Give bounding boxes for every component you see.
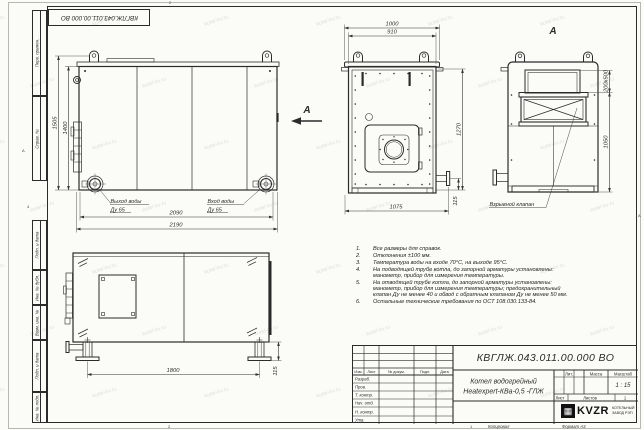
product-name-line2: Heatexpert-КВа-0,5 -ГЛЖ: [463, 389, 543, 396]
scale-header: Масштаб: [614, 371, 632, 376]
view-a-title: А: [548, 26, 556, 37]
title-block: Изм. Лист № докум. Подп. Дата Разраб. Пр…: [352, 345, 637, 423]
note-item: 1. Все размеры для справок.: [356, 246, 571, 252]
dim-1000: 1000: [386, 22, 400, 28]
dim-1505: 1505: [53, 116, 59, 130]
view-a: А 200х500 1050 Взрывной клапан: [489, 26, 613, 208]
note-number: 1.: [356, 246, 373, 252]
role-nkontr: Н. контр.: [355, 409, 374, 414]
note-item: 4. На подводящей трубе котла, до запорно…: [356, 267, 571, 279]
view-arrow-head: [291, 117, 301, 125]
col-izm: Изм.: [354, 370, 362, 374]
note-item: 3. Температура воды на входе 70°С, на вы…: [356, 260, 571, 266]
view-arrow-label: А: [302, 105, 310, 116]
label-water-out: Выход воды: [111, 199, 142, 205]
role-nachotd: Нач. отд.: [355, 401, 374, 406]
note-text: На отводящей трубе котла, до запорной ар…: [373, 280, 571, 298]
kvzr-logo-caption: КОТЕЛЬНЫЙ ЗАВОД РЭП: [612, 406, 635, 415]
note-number: 4.: [356, 267, 373, 279]
sheets-value: 1: [624, 395, 626, 400]
sheet-header: Лист: [555, 395, 564, 400]
note-item: 5. На отводящей трубе котла, до запорной…: [356, 280, 571, 298]
drawing-sheet: kotel-kv.rukotel-kv.rukotel-kv.rukotel-k…: [0, 0, 644, 430]
col-doc: № докум.: [388, 370, 405, 374]
dim-1800: 1800: [167, 368, 181, 374]
view-side: 1505 1400 2090 2190 Выход воды Ду 65 Вхо…: [53, 51, 323, 233]
sheets-header: Листов: [583, 395, 597, 400]
role-razrab: Разраб.: [355, 377, 370, 382]
dim-1075: 1075: [390, 205, 404, 211]
note-number: 5.: [356, 280, 373, 298]
note-text: Остальные технические требования по ОСТ …: [373, 299, 571, 305]
label-water-in: Вход воды: [208, 199, 235, 205]
note-text: Все размеры для справок.: [373, 246, 571, 252]
note-text: Температура воды на входе 70°С, на выход…: [373, 260, 571, 266]
label-explosion-valve: Взрывной клапан: [490, 201, 535, 208]
logo-glyph: ▦: [564, 406, 573, 417]
label-water-out-dn: Ду 65: [110, 208, 126, 214]
view-front: 1000 910 1270 115 1075: [342, 22, 466, 215]
dim-1050: 1050: [603, 135, 609, 149]
label-water-in-dn: Ду 65: [207, 208, 223, 214]
scale-value: 1 : 15: [615, 383, 630, 389]
dim-1400: 1400: [63, 121, 69, 135]
role-utv: Утв.: [355, 418, 365, 423]
mass-header: Масса: [590, 371, 602, 376]
col-list: Лист: [367, 370, 375, 374]
note-text: На подводящей трубе котла, до запорной а…: [373, 267, 571, 279]
view-rear-side: 1800 115: [64, 253, 282, 378]
dim-2190: 2190: [169, 223, 184, 229]
role-prov: Пров.: [355, 385, 366, 390]
note-text: Отклонения ±100 мм.: [373, 253, 571, 259]
col-data: Дата: [440, 370, 448, 374]
note-number: 3.: [356, 260, 373, 266]
technical-notes: 1. Все размеры для справок. 2. Отклонени…: [356, 246, 571, 306]
note-item: 2. Отклонения ±100 мм.: [356, 253, 571, 259]
dim-910: 910: [387, 30, 397, 36]
logo-caption-line2: ЗАВОД РЭП: [612, 411, 635, 416]
doc-number: КВГЛЖ.043.011.00.000 ВО: [477, 352, 615, 364]
dim-115-front: 115: [453, 196, 459, 206]
note-item: 6. Остальные технические требования по О…: [356, 299, 571, 305]
dim-1270: 1270: [456, 122, 462, 136]
dim-2090: 2090: [169, 211, 184, 217]
dim-115-rear: 115: [273, 366, 279, 376]
kvzr-logo-icon: ▦: [561, 404, 575, 418]
col-podp: Подп.: [420, 370, 430, 374]
product-name-line1: Котел водогрейный: [470, 379, 537, 386]
role-tkontr: Т. контр.: [355, 393, 373, 398]
note-number: 2.: [356, 253, 373, 259]
note-number: 6.: [356, 299, 373, 305]
lit-header: Лит.: [565, 371, 573, 376]
dim-200x500: 200х500: [603, 69, 609, 93]
kvzr-logo-text: KVZR: [577, 405, 609, 417]
logo-caption-line1: КОТЕЛЬНЫЙ: [612, 406, 635, 411]
